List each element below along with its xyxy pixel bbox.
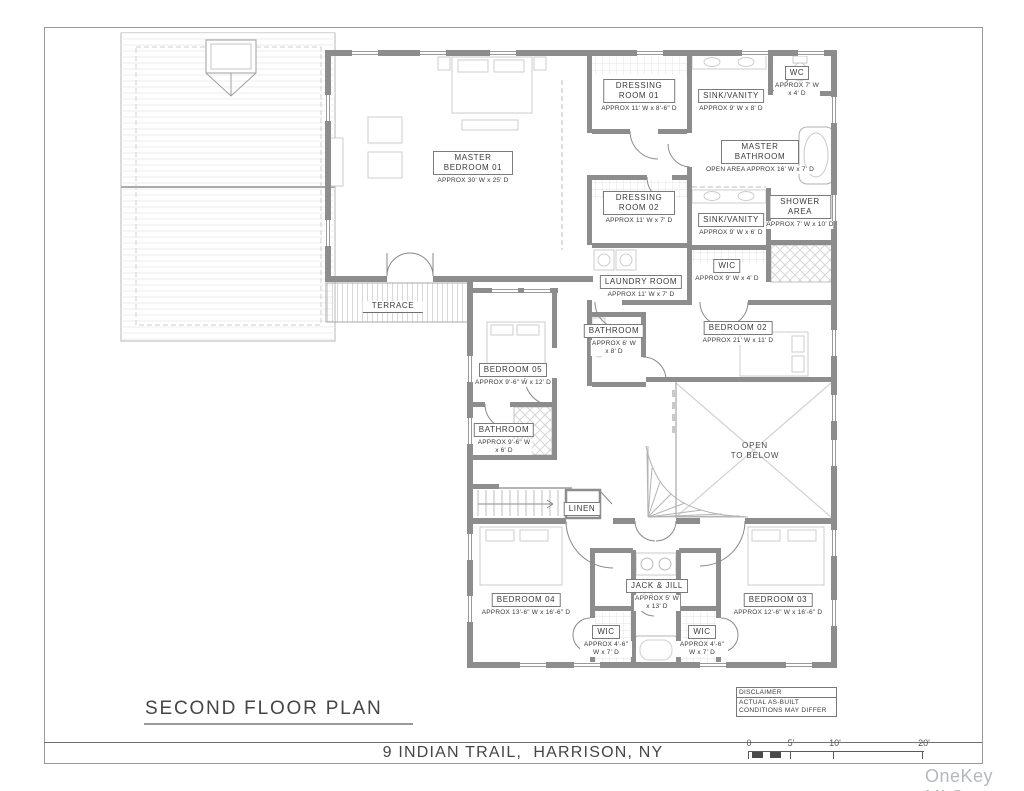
room-label-terrace: TERRACE [363, 294, 423, 314]
room-name: BATHROOM [584, 324, 644, 338]
room-name: WIC [713, 259, 740, 273]
title-bar-divider [44, 742, 982, 743]
room-name: LAUNDRY ROOM [600, 275, 682, 289]
room-dims: APPROX 11' W x 8'-6" D [601, 105, 677, 113]
room-name: WIC [688, 625, 715, 639]
disclaimer-body: ACTUAL AS-BUILT CONDITIONS MAY DIFFER [737, 698, 829, 716]
room-dims: APPROX 9'-6" W x 12' D [475, 379, 551, 387]
sheet-title: SECOND FLOOR PLAN [144, 698, 413, 725]
room-label-sink-vanity-2: SINK/VANITY APPROX 9' W x 6' D [698, 208, 764, 237]
onekey-mls-watermark: OneKey MLS [925, 766, 1024, 791]
room-name: TERRACE [363, 301, 423, 313]
room-name: DRESSING ROOM 01 [603, 79, 675, 103]
room-dims: APPROX 11' W x 7' D [603, 217, 675, 225]
address-text: 9 INDIAN TRAIL, HARRISON, NY [383, 744, 664, 762]
room-label-wic-bedroom-03: WIC APPROX 4'-6" W x 7' D [676, 620, 728, 657]
room-label-dressing-room-02: DRESSING ROOM 02 APPROX 11' W x 7' D [603, 191, 675, 225]
room-label-laundry-room: LAUNDRY ROOM APPROX 11' W x 7' D [600, 270, 682, 299]
room-name: BEDROOM 02 [704, 321, 772, 335]
room-name: MASTER BATHROOM [721, 140, 799, 164]
room-name: JACK & JILL [626, 579, 688, 593]
garage-roof [121, 33, 335, 341]
room-name: SINK/VANITY [698, 213, 764, 227]
room-name: WIC [592, 625, 619, 639]
scale-tick-10: 10' [829, 738, 841, 748]
room-dims: APPROX 12'-6" W x 16'-6" D [734, 609, 823, 617]
room-label-sink-vanity-1: SINK/VANITY APPROX 9' W x 8' D [698, 84, 764, 113]
room-dims: APPROX 5' W x 13' D [634, 595, 680, 611]
room-name: SINK/VANITY [698, 89, 764, 103]
room-label-open-to-below: OPEN TO BELOW [731, 441, 779, 461]
room-label-master-bathroom: MASTER BATHROOM OPEN AREA APPROX 16' W x… [706, 140, 814, 174]
scale-tick-5: 5' [788, 738, 795, 748]
room-label-bedroom-03: BEDROOM 03 APPROX 12'-6" W x 16'-6" D [734, 588, 823, 617]
room-label-wc: WC APPROX 7' W x 4' D [774, 61, 820, 98]
room-dims: APPROX 30' W x 25' D [433, 177, 513, 185]
room-dims: APPROX 4'-6" W x 7' D [676, 641, 728, 657]
room-dims: APPROX 9' W x 8' D [698, 105, 764, 113]
room-dims: OPEN AREA APPROX 16' W x 7' D [706, 166, 814, 174]
room-label-master-bedroom-01: MASTER BEDROOM 01 APPROX 30' W x 25' D [433, 151, 513, 185]
scale-tick-20: 20' [918, 738, 930, 748]
disclaimer-box: DISCLAIMER ACTUAL AS-BUILT CONDITIONS MA… [736, 687, 837, 717]
room-name: BEDROOM 03 [744, 593, 812, 607]
room-dims: APPROX 11' W x 7' D [600, 291, 682, 299]
room-name: BEDROOM 05 [479, 363, 547, 377]
room-dims: APPROX 7' W x 10' D [766, 221, 833, 229]
room-label-wic-bedroom-04: WIC APPROX 4'-6" W x 7' D [580, 620, 632, 657]
scale-tick-0: 0 [746, 738, 751, 748]
room-dims: APPROX 21' W x 11' D [703, 337, 774, 345]
room-label-shower-area: SHOWER AREA APPROX 7' W x 10' D [766, 195, 833, 229]
room-dims: APPROX 13'-6" W x 16'-6" D [482, 609, 571, 617]
room-dims: APPROX 9'-6" W x 6' D [476, 439, 532, 455]
room-name: MASTER BEDROOM 01 [433, 151, 513, 175]
floor-plan-drawing [0, 0, 1024, 791]
room-name: DRESSING ROOM 02 [603, 191, 675, 215]
room-name: SHOWER AREA [769, 195, 831, 219]
floor-plan-page: MASTER BEDROOM 01 APPROX 30' W x 25' D D… [0, 0, 1024, 791]
room-name: OPEN TO BELOW [731, 441, 779, 461]
room-label-jack-and-jill: JACK & JILL APPROX 5' W x 13' D [626, 574, 688, 611]
room-dims: APPROX 7' W x 4' D [774, 82, 820, 98]
room-dims: APPROX 9' W x 6' D [698, 229, 764, 237]
disclaimer-title: DISCLAIMER [737, 688, 836, 698]
room-label-bedroom-05: BEDROOM 05 APPROX 9'-6" W x 12' D [475, 358, 551, 387]
room-name: LINEN [564, 502, 601, 516]
room-label-wic-master: WIC APPROX 9' W x 4' D [695, 254, 759, 283]
room-label-bathroom-hall: BATHROOM APPROX 6' W x 8' D [584, 319, 644, 356]
room-label-dressing-room-01: DRESSING ROOM 01 APPROX 11' W x 8'-6" D [601, 79, 677, 113]
room-name: BATHROOM [474, 423, 534, 437]
room-label-linen: LINEN [564, 497, 601, 517]
room-name: BEDROOM 04 [492, 593, 560, 607]
room-label-bedroom-02: BEDROOM 02 APPROX 21' W x 11' D [703, 316, 774, 345]
room-dims: APPROX 6' W x 8' D [591, 340, 637, 356]
room-label-bathroom-05: BATHROOM APPROX 9'-6" W x 6' D [474, 418, 534, 455]
room-dims: APPROX 4'-6" W x 7' D [580, 641, 632, 657]
room-label-bedroom-04: BEDROOM 04 APPROX 13'-6" W x 16'-6" D [482, 588, 571, 617]
room-dims: APPROX 9' W x 4' D [695, 275, 759, 283]
room-name: WC [785, 66, 810, 80]
